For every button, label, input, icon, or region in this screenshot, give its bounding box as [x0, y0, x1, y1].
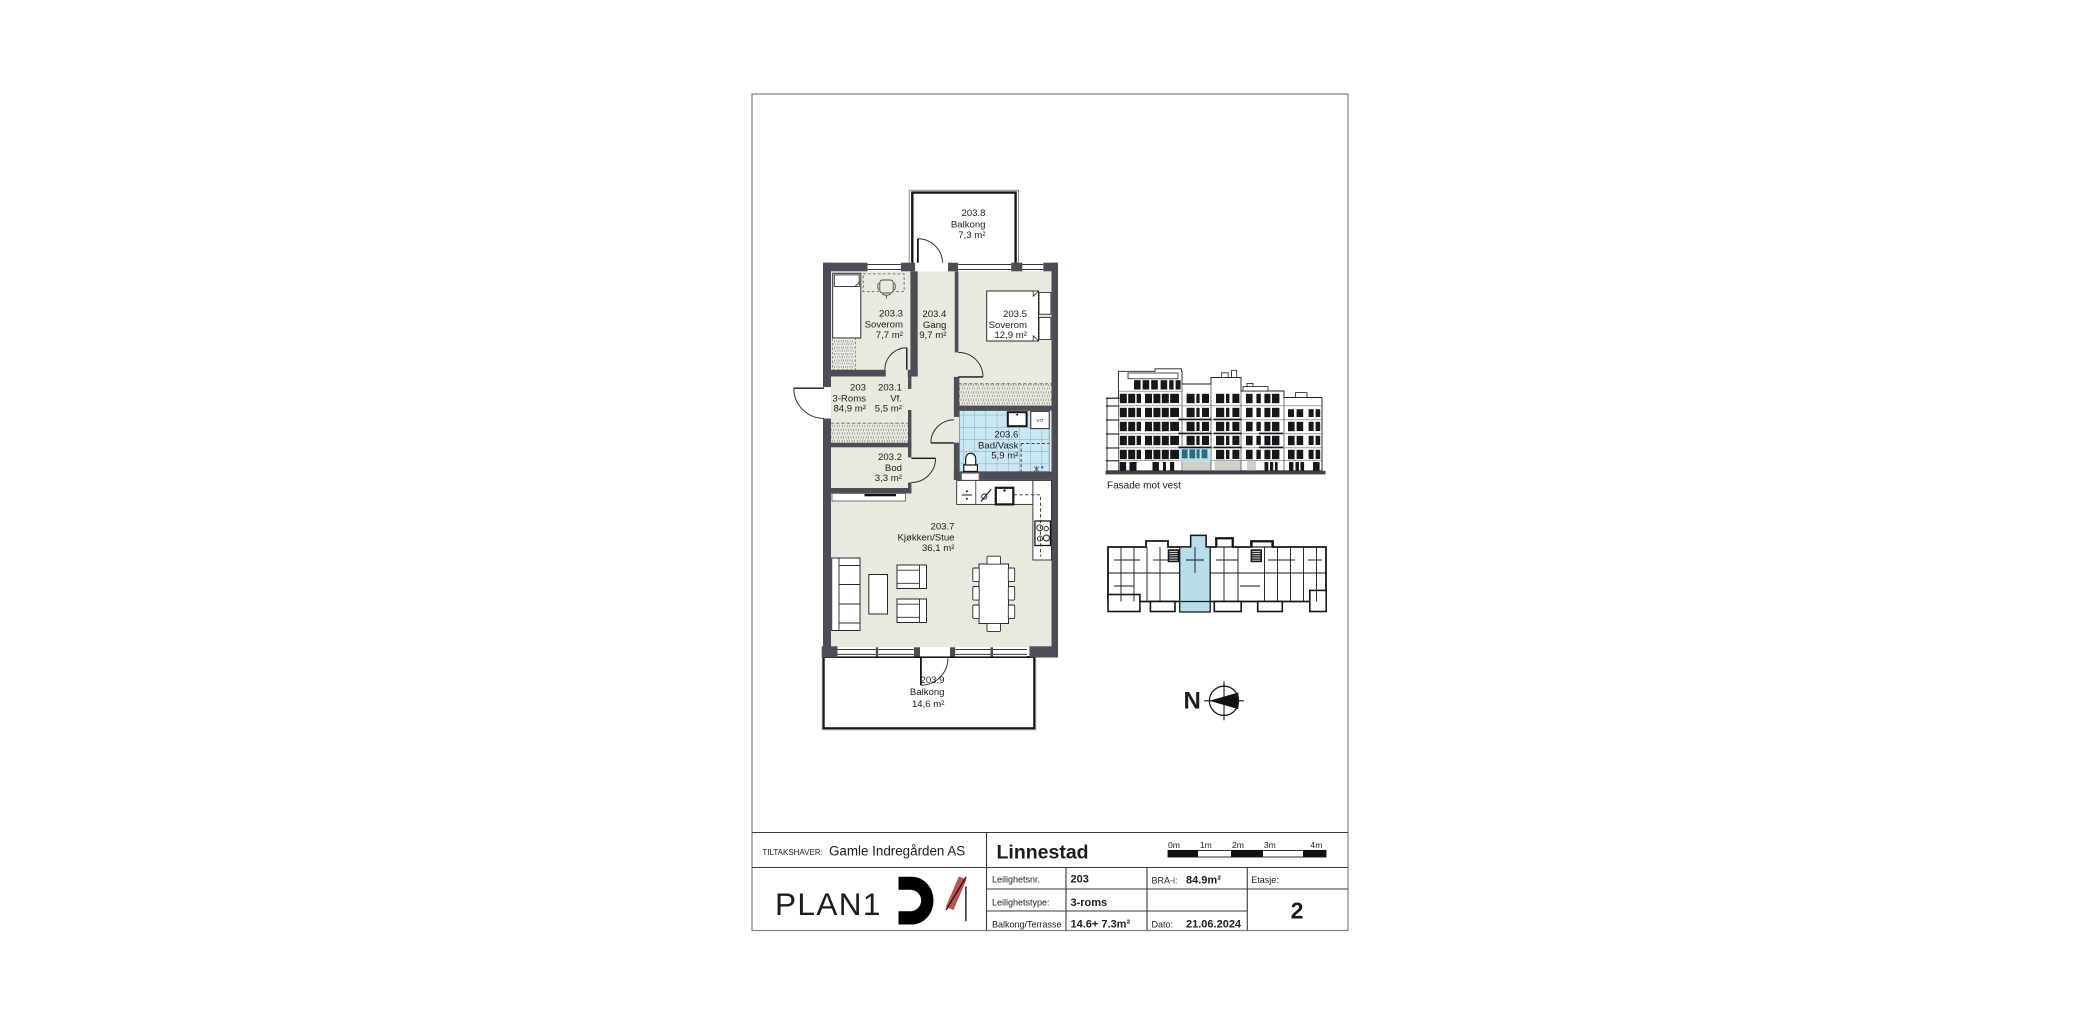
svg-text:Balkong/Terrasse: Balkong/Terrasse	[992, 920, 1062, 930]
svg-text:5,5 m²: 5,5 m²	[875, 404, 903, 415]
svg-text:Gamle Indregården AS: Gamle Indregården AS	[829, 844, 965, 859]
svg-text:3m: 3m	[1264, 840, 1276, 850]
svg-text:203.2: 203.2	[878, 452, 902, 463]
svg-text:VIT: VIT	[1036, 418, 1043, 423]
svg-text:0m: 0m	[1168, 840, 1180, 850]
svg-text:12,9 m²: 12,9 m²	[994, 330, 1027, 341]
svg-text:203.6: 203.6	[994, 430, 1018, 441]
svg-text:Soverom: Soverom	[865, 319, 903, 330]
svg-text:203: 203	[850, 383, 866, 394]
svg-text:203.1: 203.1	[878, 383, 902, 394]
svg-text:36,1 m²: 36,1 m²	[922, 543, 955, 554]
svg-text:Etasje:: Etasje:	[1251, 875, 1279, 885]
svg-text:2m: 2m	[1232, 840, 1244, 850]
svg-text:14,6 m²: 14,6 m²	[912, 699, 945, 710]
svg-text:3,3 m²: 3,3 m²	[875, 473, 903, 484]
svg-text:Leilighetsnr.: Leilighetsnr.	[992, 875, 1040, 885]
svg-text:203: 203	[1071, 874, 1089, 886]
svg-text:9,7 m²: 9,7 m²	[919, 330, 947, 341]
svg-text:TILTAKSHAVER:: TILTAKSHAVER:	[762, 848, 822, 857]
svg-text:84.9m²: 84.9m²	[1186, 875, 1221, 887]
svg-text:BRA-i:: BRA-i:	[1152, 876, 1178, 886]
svg-text:21.06.2024: 21.06.2024	[1186, 919, 1242, 931]
svg-text:Fasade mot vest: Fasade mot vest	[1107, 481, 1181, 492]
svg-text:203.7: 203.7	[930, 521, 954, 532]
svg-text:Leilighetstype:: Leilighetstype:	[992, 898, 1050, 908]
svg-text:7,7 m²: 7,7 m²	[876, 330, 904, 341]
svg-text:203.5: 203.5	[1003, 309, 1027, 320]
svg-text:3-roms: 3-roms	[1071, 897, 1108, 909]
svg-text:84,9 m²: 84,9 m²	[833, 404, 866, 415]
svg-text:N: N	[1184, 688, 1201, 715]
svg-text:Kjøkken/Stue: Kjøkken/Stue	[897, 532, 954, 543]
svg-text:Dato:: Dato:	[1152, 920, 1174, 930]
svg-text:2: 2	[1291, 898, 1304, 924]
svg-text:1m: 1m	[1200, 840, 1212, 850]
svg-text:Balkong: Balkong	[951, 219, 986, 230]
svg-text:203.4: 203.4	[922, 309, 947, 320]
svg-text:14.6+ 7.3m²: 14.6+ 7.3m²	[1071, 919, 1131, 931]
svg-text:PLAN1: PLAN1	[775, 886, 882, 922]
svg-text:4m: 4m	[1310, 840, 1322, 850]
svg-text:7,3 m²: 7,3 m²	[958, 230, 986, 241]
svg-text:Balkong: Balkong	[910, 687, 945, 698]
svg-text:5,9 m²: 5,9 m²	[991, 451, 1019, 462]
svg-text:203.3: 203.3	[879, 308, 903, 319]
svg-text:203.9: 203.9	[920, 675, 944, 686]
svg-text:Linnestad: Linnestad	[997, 842, 1089, 864]
svg-text:203.8: 203.8	[961, 208, 985, 219]
